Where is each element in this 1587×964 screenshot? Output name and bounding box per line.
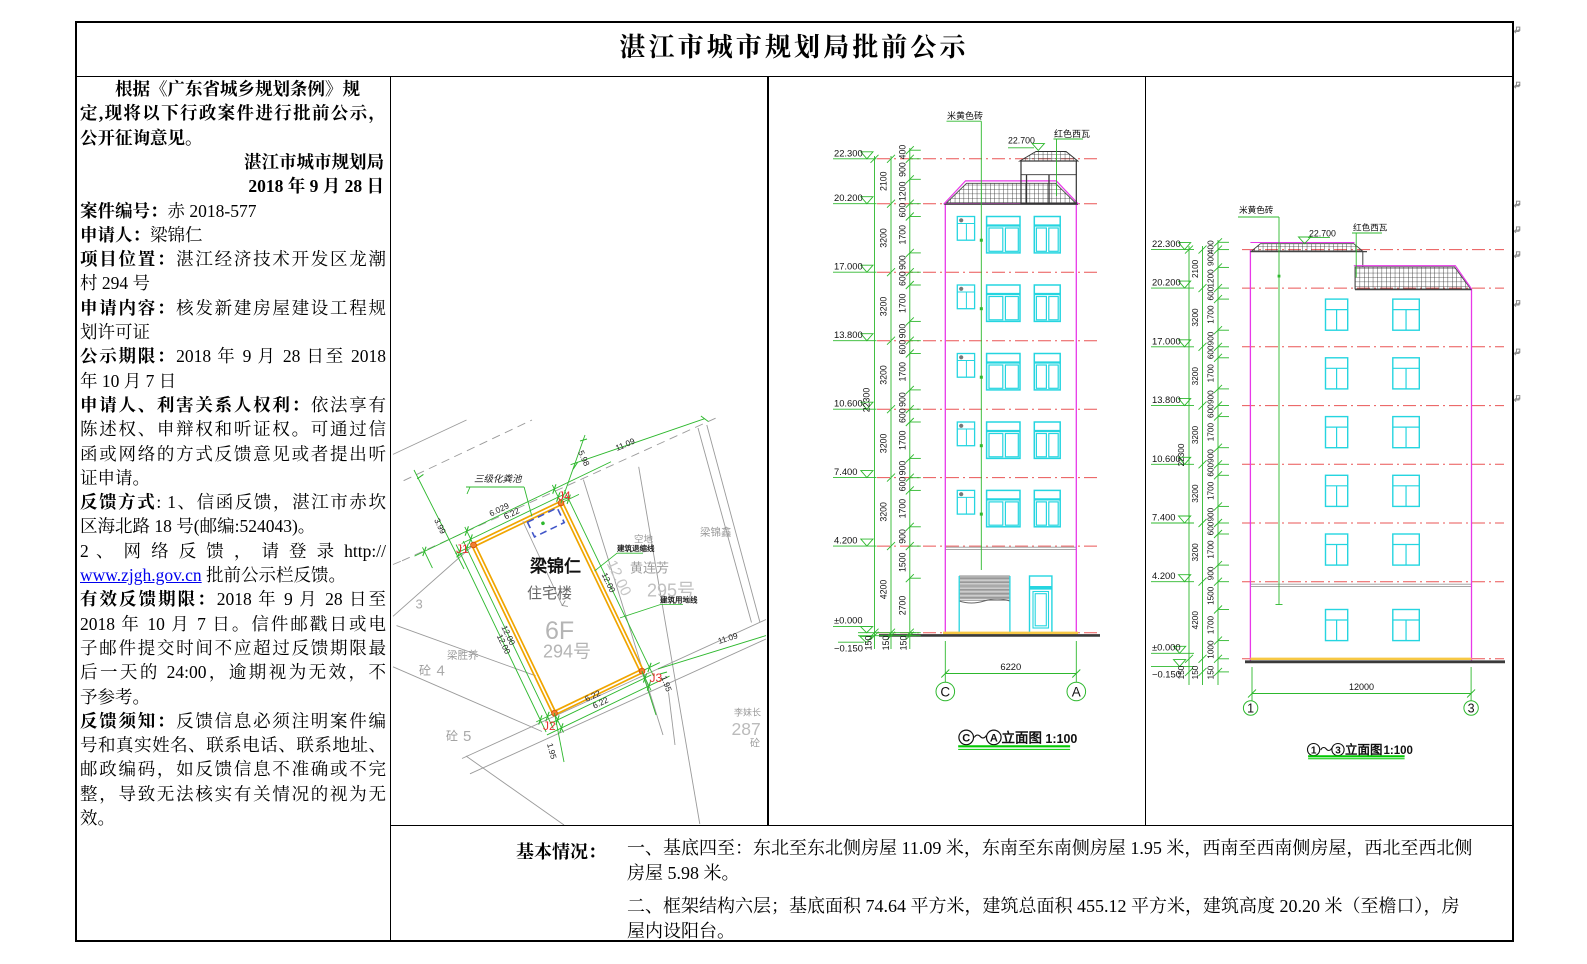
svg-text:13.800: 13.800 [1152, 394, 1181, 405]
svg-text:住宅楼: 住宅楼 [527, 585, 572, 602]
svg-text:三级化粪池: 三级化粪池 [474, 474, 523, 485]
svg-text:900: 900 [1207, 566, 1216, 580]
svg-text:红色西瓦: 红色西瓦 [1054, 128, 1090, 139]
svg-text:砼: 砼 [419, 664, 431, 678]
svg-text:900: 900 [898, 461, 908, 476]
svg-text:1700: 1700 [1207, 615, 1216, 634]
svg-text:17.000: 17.000 [834, 261, 863, 272]
svg-text:12000: 12000 [1349, 682, 1374, 692]
svg-text:1700: 1700 [898, 499, 908, 519]
svg-text:150: 150 [1191, 665, 1200, 679]
svg-text:1700: 1700 [898, 362, 908, 382]
svg-text:3200: 3200 [879, 365, 889, 385]
svg-text:17.000: 17.000 [1152, 335, 1181, 346]
svg-text:～: ～ [1320, 742, 1333, 757]
svg-text:立面图: 立面图 [1345, 742, 1383, 757]
svg-text:1:100: 1:100 [1045, 732, 1077, 746]
svg-text:1: 1 [1311, 745, 1317, 756]
svg-text:±0.000: ±0.000 [834, 615, 863, 626]
svg-text:1500: 1500 [898, 552, 908, 572]
svg-text:±0.000: ±0.000 [1152, 641, 1181, 652]
svg-text:900: 900 [1207, 331, 1216, 345]
svg-text:600: 600 [1207, 345, 1216, 359]
svg-text:1200: 1200 [1207, 269, 1216, 288]
svg-text:空地: 空地 [634, 534, 654, 546]
svg-text:梁胜养: 梁胜养 [447, 649, 479, 662]
svg-text:3200: 3200 [879, 502, 889, 522]
svg-text:3200: 3200 [1191, 367, 1200, 386]
svg-text:150: 150 [1177, 665, 1186, 679]
svg-text:600: 600 [898, 408, 908, 423]
svg-text:1: 1 [1247, 702, 1254, 716]
svg-text:4.200: 4.200 [834, 535, 857, 546]
svg-text:1700: 1700 [1207, 364, 1216, 383]
svg-text:1700: 1700 [1207, 481, 1216, 500]
svg-text:2100: 2100 [879, 171, 889, 191]
svg-text:900: 900 [898, 255, 908, 270]
svg-text:900: 900 [898, 529, 908, 544]
svg-text:C: C [962, 733, 970, 745]
svg-text:4200: 4200 [879, 580, 889, 600]
svg-text:砼: 砼 [750, 737, 760, 750]
svg-text:3200: 3200 [879, 297, 889, 317]
svg-text:J3: J3 [650, 671, 663, 685]
svg-text:3200: 3200 [1191, 484, 1200, 503]
svg-text:黄连芳: 黄连芳 [630, 561, 669, 576]
svg-text:4.200: 4.200 [1152, 570, 1175, 581]
svg-text:梁锦仁: 梁锦仁 [529, 556, 581, 576]
svg-text:11.09: 11.09 [717, 630, 740, 646]
svg-text:400: 400 [1207, 240, 1216, 254]
svg-text:立面图: 立面图 [1002, 730, 1043, 746]
svg-text:梁锦鑫: 梁锦鑫 [700, 526, 732, 539]
svg-text:22300: 22300 [862, 388, 872, 413]
svg-text:7.400: 7.400 [1152, 512, 1175, 523]
svg-text:1700: 1700 [898, 430, 908, 450]
svg-text:900: 900 [898, 324, 908, 339]
svg-text:1000: 1000 [1207, 640, 1216, 659]
svg-text:22.700: 22.700 [1309, 229, 1336, 239]
svg-text:红色西瓦: 红色西瓦 [1353, 222, 1388, 233]
svg-text:砼: 砼 [446, 729, 458, 743]
svg-text:3200: 3200 [1191, 308, 1200, 327]
svg-text:150: 150 [898, 636, 908, 651]
svg-text:600: 600 [1207, 521, 1216, 535]
svg-text:3: 3 [1335, 745, 1341, 756]
svg-text:1500: 1500 [1207, 586, 1216, 605]
svg-text:150: 150 [881, 636, 891, 651]
svg-text:李妹长: 李妹长 [734, 707, 761, 718]
svg-text:5.98: 5.98 [576, 449, 592, 468]
svg-text:1700: 1700 [1207, 423, 1216, 442]
svg-text:13.800: 13.800 [834, 329, 863, 340]
svg-text:900: 900 [1207, 449, 1216, 463]
svg-text:J1: J1 [456, 542, 469, 556]
svg-text:10.600: 10.600 [834, 398, 863, 409]
svg-text:900: 900 [898, 162, 908, 177]
svg-text:1700: 1700 [898, 293, 908, 313]
svg-text:1700: 1700 [898, 225, 908, 245]
svg-text:22300: 22300 [1177, 443, 1186, 466]
svg-text:3200: 3200 [1191, 425, 1200, 444]
svg-text:900: 900 [898, 392, 908, 407]
svg-text:3200: 3200 [1191, 543, 1200, 562]
svg-text:C: C [940, 685, 950, 700]
svg-text:600: 600 [898, 271, 908, 286]
svg-text:3: 3 [416, 597, 423, 612]
svg-text:600: 600 [1207, 286, 1216, 300]
svg-text:400: 400 [898, 145, 908, 160]
svg-text:287: 287 [732, 719, 761, 739]
svg-text:11.09: 11.09 [614, 436, 637, 453]
svg-text:米黄色砖: 米黄色砖 [1239, 204, 1274, 215]
svg-text:20.200: 20.200 [1152, 277, 1181, 288]
svg-text:1700: 1700 [1207, 305, 1216, 324]
svg-text:22.700: 22.700 [1008, 136, 1035, 146]
svg-text:1:100: 1:100 [1384, 745, 1413, 757]
svg-text:A: A [1072, 685, 1081, 700]
svg-text:1200: 1200 [898, 181, 908, 201]
svg-text:3200: 3200 [879, 434, 889, 454]
svg-text:3: 3 [1468, 702, 1475, 716]
svg-text:2700: 2700 [898, 596, 908, 616]
svg-text:295号: 295号 [647, 581, 695, 601]
svg-text:～: ～ [973, 729, 987, 745]
svg-text:22.300: 22.300 [1152, 238, 1181, 249]
svg-text:7.400: 7.400 [834, 466, 857, 477]
svg-text:900: 900 [1207, 390, 1216, 404]
svg-text:1700: 1700 [1207, 540, 1216, 559]
svg-text:4: 4 [437, 663, 445, 680]
svg-text:米黄色砖: 米黄色砖 [947, 110, 983, 121]
svg-text:600: 600 [1207, 404, 1216, 418]
svg-text:5: 5 [463, 728, 471, 745]
svg-text:3200: 3200 [879, 228, 889, 248]
svg-text:−0.150: −0.150 [834, 643, 863, 654]
svg-text:A: A [990, 733, 998, 745]
svg-text:J2: J2 [543, 719, 556, 733]
svg-text:150: 150 [864, 636, 874, 651]
svg-text:20.200: 20.200 [834, 192, 863, 203]
svg-text:600: 600 [898, 340, 908, 355]
svg-text:4200: 4200 [1191, 611, 1200, 630]
svg-text:J4: J4 [558, 489, 571, 503]
svg-text:900: 900 [1207, 252, 1216, 266]
svg-text:22.300: 22.300 [834, 147, 863, 158]
svg-text:150: 150 [1207, 665, 1216, 679]
svg-text:6220: 6220 [1000, 661, 1021, 672]
svg-text:600: 600 [898, 477, 908, 492]
svg-text:1.95: 1.95 [545, 742, 559, 761]
svg-text:294号: 294号 [543, 642, 591, 662]
svg-text:2100: 2100 [1191, 259, 1200, 278]
svg-text:900: 900 [1207, 507, 1216, 521]
svg-text:600: 600 [898, 203, 908, 218]
svg-text:600: 600 [1207, 463, 1216, 477]
